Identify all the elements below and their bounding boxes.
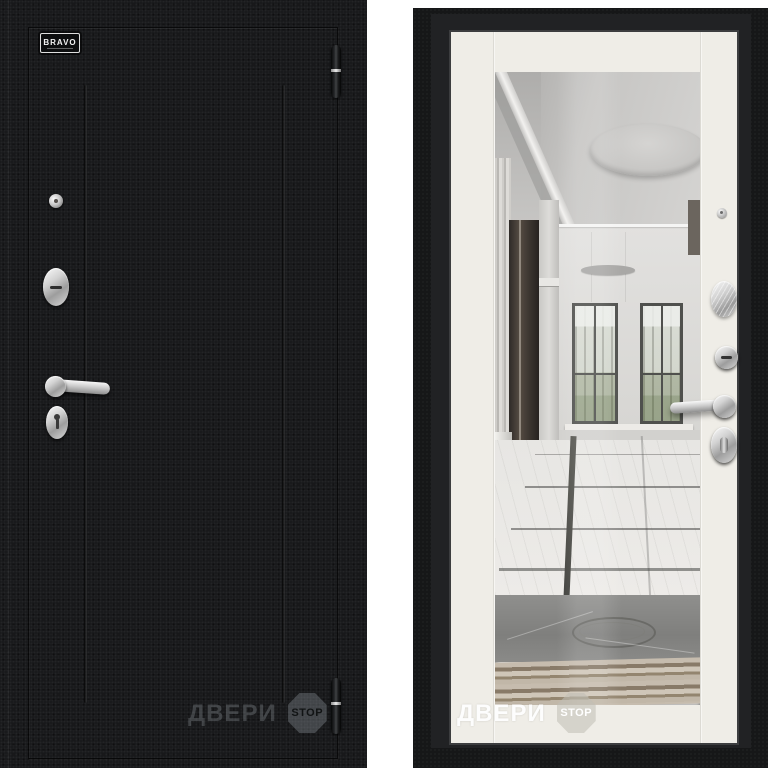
brand-badge-label: BRAVO	[43, 38, 76, 47]
hinge-bottom-icon	[331, 678, 341, 734]
window-transom	[575, 373, 615, 375]
reflected-cove-line	[559, 224, 700, 227]
reflected-dark-corner	[688, 200, 700, 255]
watermark-right-stop-label: STOP	[560, 707, 592, 719]
door-back-assembly: ДВЕРИ STOP	[413, 8, 768, 768]
back-door-pin-icon	[717, 208, 727, 218]
mirror-reflection	[495, 72, 700, 705]
back-cylinder-slot	[721, 356, 732, 359]
brand-badge: BRAVO	[40, 33, 80, 53]
door-front-groove-left	[84, 85, 87, 703]
floor-inlay-line	[525, 486, 700, 488]
window-mullion	[661, 306, 663, 421]
back-thumbturn-escutcheon-icon	[711, 427, 737, 463]
floor-inlay-line	[511, 528, 700, 530]
back-cylinder-icon	[715, 346, 738, 369]
reflected-window-left	[572, 303, 618, 424]
watermark-left: ДВЕРИ STOP	[188, 693, 327, 733]
window-transom	[643, 373, 680, 375]
door-front-panel: BRAVO ДВЕРИ STOP	[0, 0, 367, 768]
back-handle-rosette	[713, 395, 736, 418]
hinge-band	[331, 702, 341, 705]
lock-cylinder-cover-icon	[43, 268, 69, 306]
door-back-seam-right	[700, 32, 701, 743]
peephole-lens	[54, 199, 58, 203]
door-front-edge-line	[8, 0, 9, 768]
keyhole-stem	[56, 419, 59, 429]
door-front-panel-outline	[28, 27, 338, 759]
back-thumbturn	[720, 437, 728, 453]
reflected-gray-floor	[495, 595, 700, 662]
lock-cylinder-slot	[50, 286, 62, 289]
reflected-molding	[539, 278, 559, 286]
reflected-pendant-lamp	[581, 265, 635, 275]
watermark-left-stop-label: STOP	[291, 707, 323, 719]
window-mullion	[594, 306, 596, 421]
reflected-marble-floor	[495, 440, 700, 595]
stop-octagon-icon: STOP	[557, 693, 596, 733]
door-back-seam-left	[493, 32, 494, 743]
floor-inlay-line	[499, 568, 700, 571]
floor-inlay-line	[535, 454, 700, 455]
back-door-pin-center	[720, 211, 723, 214]
hinge-band	[331, 69, 341, 72]
hinge-top-icon	[331, 45, 341, 98]
floor-inlay-line	[641, 436, 652, 599]
watermark-left-text: ДВЕРИ	[188, 702, 277, 726]
reflected-ceiling-light	[590, 124, 700, 176]
watermark-right-text: ДВЕРИ	[457, 702, 546, 726]
peephole-icon	[49, 194, 63, 208]
door-front-groove-right	[282, 85, 285, 703]
floor-inlay-band	[563, 436, 576, 599]
stop-octagon-icon: STOP	[288, 693, 327, 733]
front-handle-rosette	[45, 376, 66, 397]
keyhole-escutcheon-icon	[46, 406, 68, 439]
brand-badge-subline	[47, 48, 73, 49]
back-lock-escutcheon-icon	[711, 281, 737, 317]
watermark-right: ДВЕРИ STOP	[457, 693, 596, 733]
